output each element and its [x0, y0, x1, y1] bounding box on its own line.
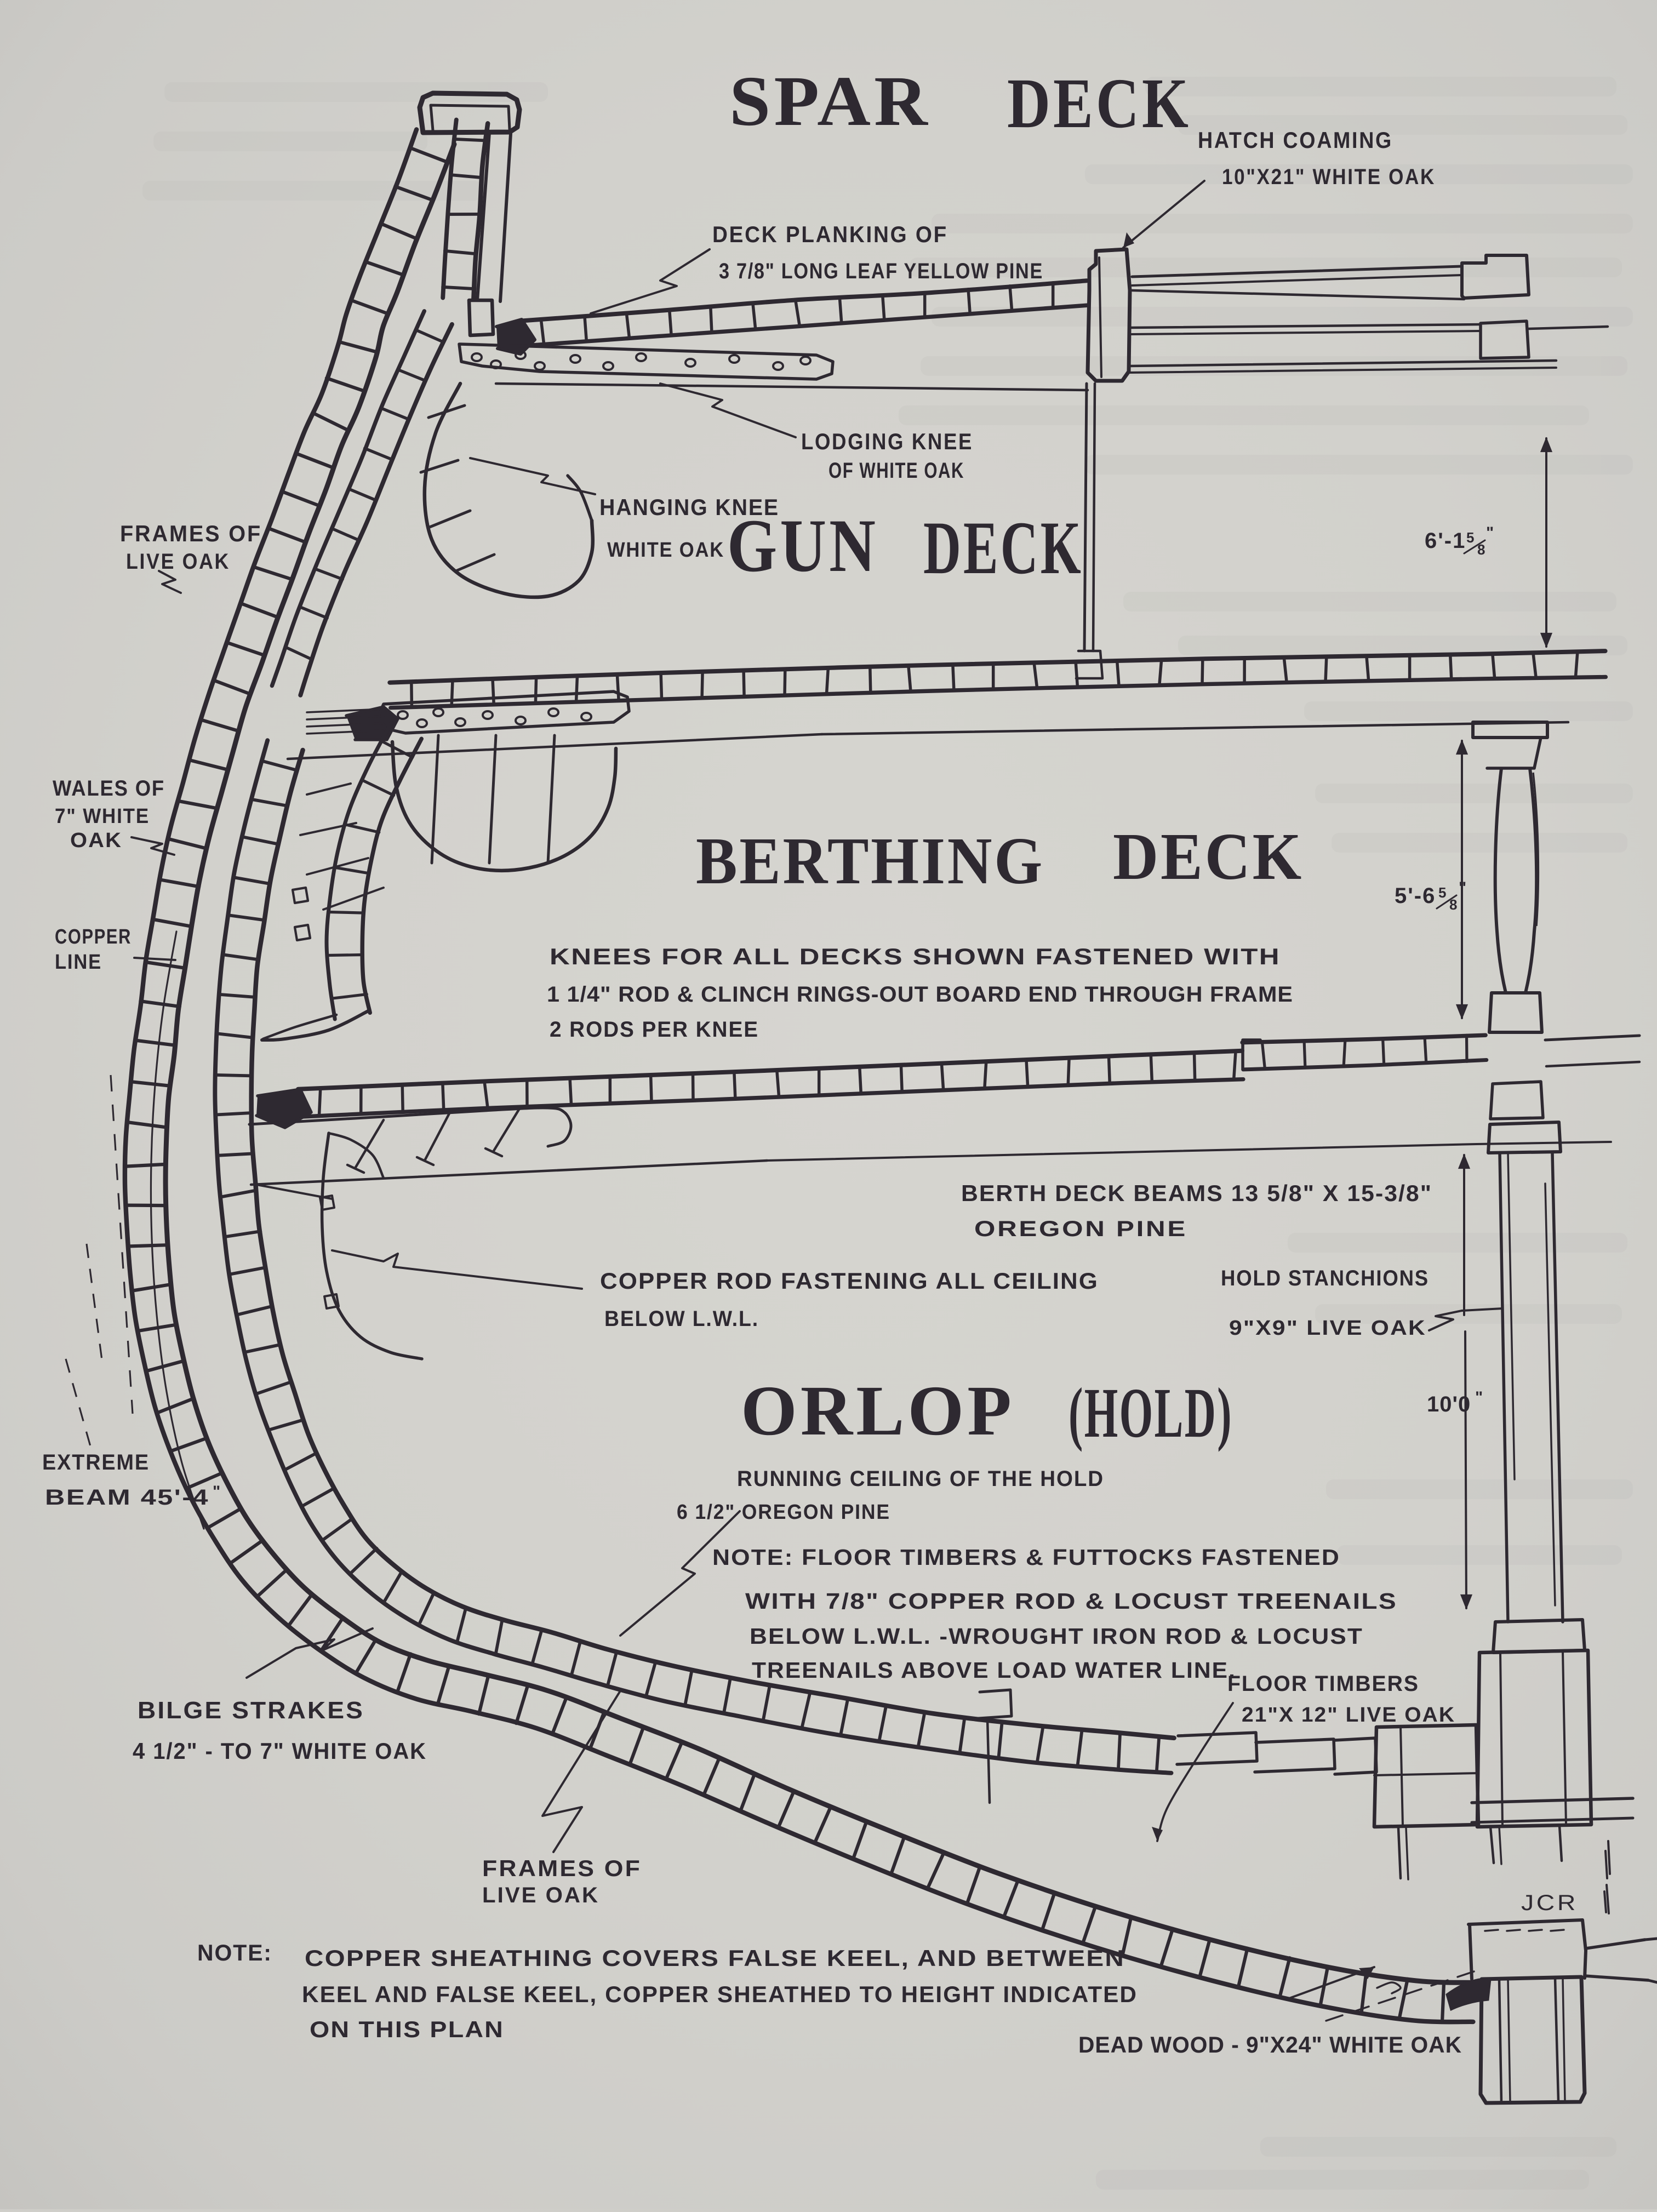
svg-text:": " [1459, 879, 1466, 897]
svg-text:FRAMES OF: FRAMES OF [120, 521, 262, 546]
svg-text:DECK PLANKING OF: DECK PLANKING OF [712, 221, 948, 247]
svg-text:JCR: JCR [1521, 1891, 1578, 1915]
svg-text:10'0: 10'0 [1427, 1392, 1471, 1416]
svg-text:DECK: DECK [1007, 64, 1191, 143]
svg-text:DECK: DECK [923, 506, 1083, 590]
svg-text:DECK: DECK [1113, 820, 1304, 894]
svg-text:9"X9" LIVE OAK: 9"X9" LIVE OAK [1229, 1317, 1426, 1340]
svg-text:LIVE OAK: LIVE OAK [126, 550, 230, 574]
svg-text:21"X 12" LIVE OAK: 21"X 12" LIVE OAK [1242, 1704, 1455, 1727]
svg-text:RUNNING CEILING OF THE HOLD: RUNNING CEILING OF THE HOLD [737, 1467, 1104, 1491]
svg-text:BERTH DECK BEAMS 13 5/8" X 15-: BERTH DECK BEAMS 13 5/8" X 15-3/8" [961, 1180, 1432, 1206]
svg-text:COPPER ROD FASTENING ALL CEILI: COPPER ROD FASTENING ALL CEILING [600, 1268, 1099, 1294]
svg-text:5'-6: 5'-6 [1395, 884, 1436, 908]
svg-text:LINE: LINE [55, 951, 102, 974]
svg-text:": " [213, 1483, 220, 1501]
svg-text:FRAMES OF: FRAMES OF [482, 1855, 642, 1881]
svg-text:KEEL AND FALSE KEEL, COPPER SH: KEEL AND FALSE KEEL, COPPER SHEATHED TO … [302, 1981, 1138, 2007]
svg-text:DEAD WOOD - 9"X24" WHITE OAK: DEAD WOOD - 9"X24" WHITE OAK [1078, 2032, 1462, 2057]
svg-text:3 7/8" LONG LEAF YELLOW PINE: 3 7/8" LONG LEAF YELLOW PINE [719, 259, 1043, 283]
svg-text:HANGING KNEE: HANGING KNEE [599, 494, 779, 520]
svg-text:WALES OF: WALES OF [53, 776, 165, 801]
svg-text:WHITE OAK: WHITE OAK [607, 539, 724, 562]
svg-text:BILGE STRAKES: BILGE STRAKES [138, 1697, 364, 1724]
svg-text:BELOW L.W.L. -WROUGHT IRON ROD: BELOW L.W.L. -WROUGHT IRON ROD & LOCUST [750, 1624, 1363, 1649]
svg-text:ON THIS PLAN: ON THIS PLAN [310, 2016, 504, 2042]
svg-text:ORLOP: ORLOP [741, 1371, 1015, 1450]
svg-text:10"X21" WHITE OAK: 10"X21" WHITE OAK [1222, 165, 1436, 189]
svg-text:LIVE OAK: LIVE OAK [482, 1883, 599, 1907]
svg-text:HOLD STANCHIONS: HOLD STANCHIONS [1221, 1266, 1429, 1290]
svg-text:4 1/2" - TO 7" WHITE OAK: 4 1/2" - TO 7" WHITE OAK [133, 1738, 427, 1764]
svg-text:5: 5 [1438, 884, 1446, 901]
svg-text:7" WHITE: 7" WHITE [55, 805, 150, 828]
svg-text:1 1/4" ROD & CLINCH RINGS-OUT: 1 1/4" ROD & CLINCH RINGS-OUT BOARD END … [547, 982, 1293, 1007]
svg-text:OAK: OAK [70, 829, 122, 852]
svg-text:6'-1: 6'-1 [1425, 529, 1466, 553]
svg-text:(HOLD): (HOLD) [1069, 1374, 1233, 1453]
svg-text:KNEES FOR ALL DECKS SHOWN FAST: KNEES FOR ALL DECKS SHOWN FASTENED WITH [550, 944, 1281, 969]
svg-text:OREGON PINE: OREGON PINE [974, 1217, 1187, 1241]
svg-text:NOTE: FLOOR TIMBERS & FUTTOCKS: NOTE: FLOOR TIMBERS & FUTTOCKS FASTENED [712, 1545, 1340, 1570]
svg-text:EXTREME: EXTREME [42, 1450, 150, 1474]
svg-text:6 1/2" OREGON PINE: 6 1/2" OREGON PINE [677, 1501, 890, 1524]
svg-text:BELOW L.W.L.: BELOW L.W.L. [604, 1307, 759, 1331]
svg-text:FLOOR TIMBERS: FLOOR TIMBERS [1227, 1672, 1419, 1696]
svg-text:SPAR: SPAR [729, 62, 931, 141]
svg-text:OF WHITE OAK: OF WHITE OAK [828, 459, 964, 483]
svg-text:": " [1475, 1388, 1483, 1407]
svg-text:": " [1486, 524, 1494, 542]
svg-text:WITH 7/8" COPPER ROD & LOCUST: WITH 7/8" COPPER ROD & LOCUST TREENAILS [745, 1588, 1397, 1614]
svg-text:BERTHING: BERTHING [696, 824, 1044, 898]
svg-text:HATCH COAMING: HATCH COAMING [1198, 127, 1393, 153]
svg-text:TREENAILS ABOVE LOAD WATER LIN: TREENAILS ABOVE LOAD WATER LINE. [752, 1657, 1236, 1683]
svg-text:COPPER SHEATHING COVERS FALSE: COPPER SHEATHING COVERS FALSE KEEL, AND … [305, 1945, 1125, 1971]
svg-text:5: 5 [1466, 529, 1474, 546]
svg-text:NOTE:: NOTE: [197, 1940, 272, 1965]
svg-text:2 RODS PER KNEE: 2 RODS PER KNEE [550, 1018, 759, 1042]
svg-text:COPPER: COPPER [55, 925, 132, 948]
svg-text:BEAM 45'-4: BEAM 45'-4 [45, 1485, 209, 1510]
svg-text:LODGING KNEE: LODGING KNEE [801, 428, 973, 454]
